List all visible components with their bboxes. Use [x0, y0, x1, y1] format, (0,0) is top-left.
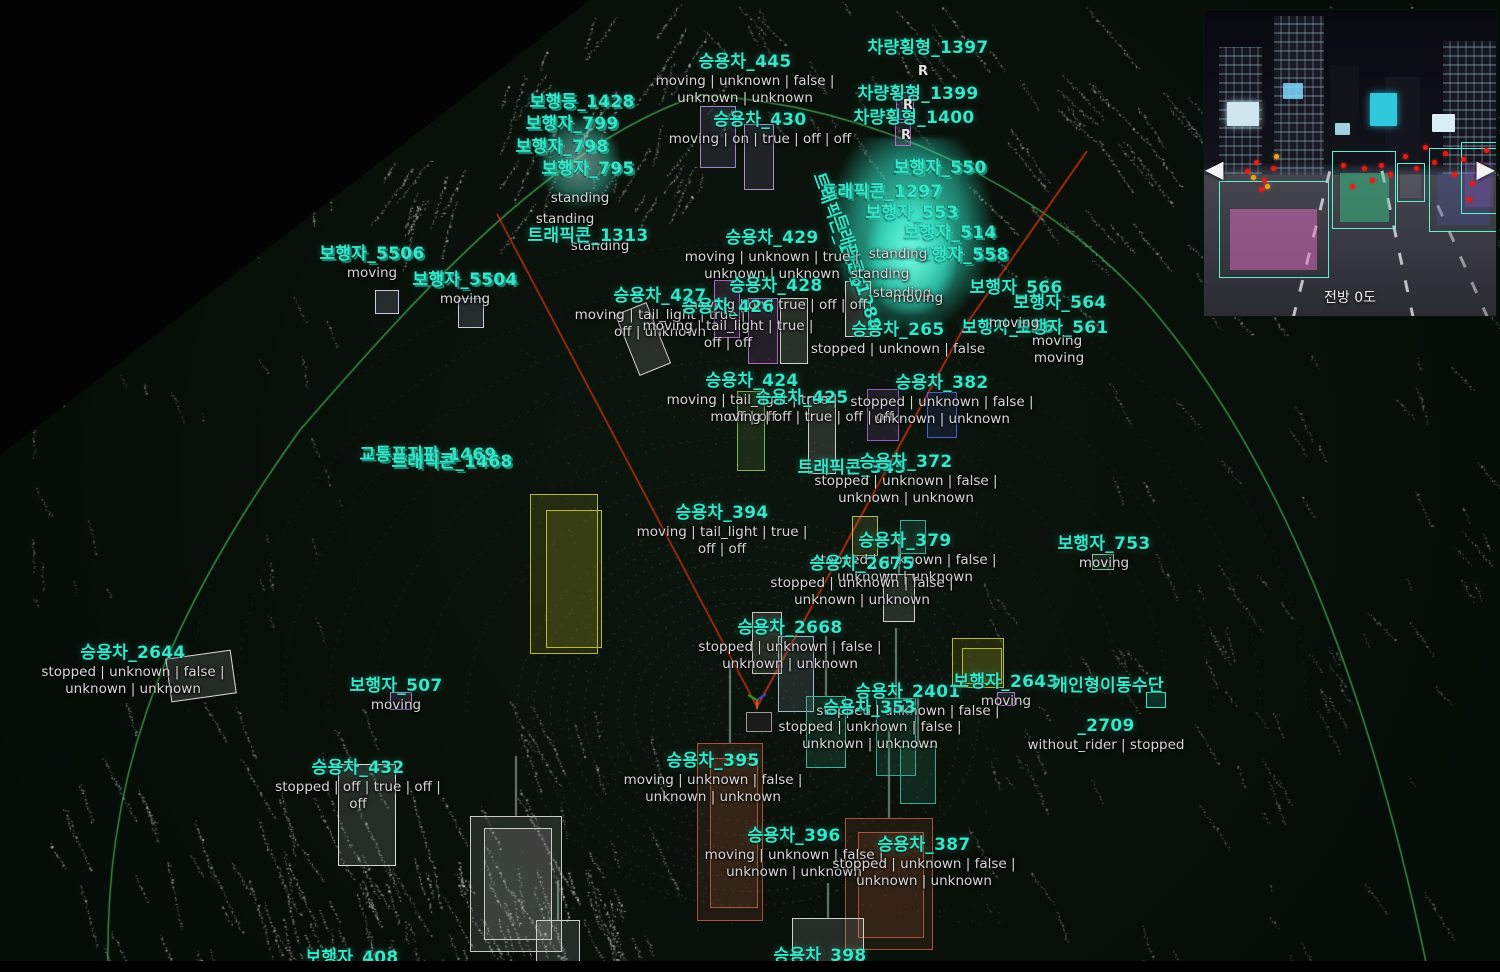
object-label[interactable]: 승용차_353stopped | unknown | false |unknow…: [778, 698, 961, 753]
object-label[interactable]: 승용차_395moving | unknown | false |unknown…: [624, 751, 803, 806]
object-attributes: unknown | unknown: [778, 736, 961, 753]
object-label[interactable]: 승용차_2668stopped | unknown | false |unkno…: [698, 618, 881, 673]
object-label[interactable]: 승용차_387stopped | unknown | false |unknow…: [832, 835, 1015, 890]
object-id: 차량횡형_1399: [857, 84, 978, 105]
bottom-letterbox: [0, 961, 1500, 972]
r-flag-label: R: [903, 98, 913, 113]
object-label[interactable]: 보행등_1428: [529, 92, 634, 113]
object-id: 승용차_353: [778, 698, 961, 719]
object-id: 승용차_429: [685, 228, 859, 249]
object-id: 승용차_2644: [41, 643, 224, 664]
object-status[interactable]: standing: [551, 190, 610, 207]
object-attributes: unknown | unknown: [814, 490, 997, 507]
object-attributes: stopped | unknown | false |: [832, 856, 1015, 873]
object-id: 보행자_553: [865, 203, 958, 224]
camera-view-panel: 전방 0도 ◀ ▶: [1204, 10, 1496, 316]
object-label[interactable]: 승용차_265stopped | unknown | false: [811, 320, 985, 358]
object-attributes: moving | tail_light | true |: [637, 524, 808, 541]
object-status[interactable]: moving: [1032, 333, 1082, 350]
object-id: 개인형이동수단: [1052, 676, 1164, 697]
camera-next-button[interactable]: ▶: [1477, 157, 1495, 181]
object-id: 트래픽콘_1297: [821, 182, 942, 203]
object-id: 승용차_426: [643, 297, 814, 318]
segmentation-mask: [1340, 173, 1389, 222]
detection-keypoint: [1274, 154, 1279, 159]
object-attributes: moving | on | true | off | off: [669, 131, 851, 148]
object-attributes: moving | unknown | true |: [685, 249, 859, 266]
object-attributes: moving: [893, 290, 943, 307]
object-attributes: moving | unknown | false |: [624, 772, 803, 789]
object-label[interactable]: 보행자_799: [525, 114, 618, 135]
object-attributes: stopped | unknown | false |: [41, 664, 224, 681]
object-id: 승용차_387: [832, 835, 1015, 856]
object-attributes: unknown | unknown: [624, 789, 803, 806]
object-label[interactable]: 개인형이동수단: [1052, 676, 1164, 697]
segmentation-mask: [1230, 209, 1316, 270]
object-attributes: unknown | unknown: [656, 90, 835, 107]
object-label[interactable]: 승용차_2644stopped | unknown | false |unkno…: [41, 643, 224, 698]
object-id: 보행자_507: [349, 676, 442, 697]
bbox-3d[interactable]: [546, 510, 602, 648]
object-label[interactable]: 보행자_795: [541, 159, 634, 180]
camera-prev-button[interactable]: ◀: [1205, 157, 1223, 181]
object-label[interactable]: 승용차_429moving | unknown | true |unknown …: [685, 228, 859, 283]
object-attributes: moving: [1034, 350, 1084, 367]
object-id: 승용차_445: [656, 52, 835, 73]
object-attributes: moving: [319, 265, 424, 282]
object-label[interactable]: 트래픽콘_1468: [391, 452, 512, 473]
detection-keypoint: [1467, 197, 1472, 202]
object-id: 승용차_2668: [698, 618, 881, 639]
object-id: 승용차_379: [813, 531, 996, 552]
object-attributes: standing: [551, 190, 610, 207]
object-label[interactable]: 승용차_394moving | tail_light | true |off |…: [637, 503, 808, 558]
detection-keypoint: [1403, 154, 1408, 159]
object-label[interactable]: 승용차_426moving | tail_light | true |off |…: [643, 297, 814, 352]
object-id: 승용차_395: [624, 751, 803, 772]
object-attributes: stopped | unknown | false |: [770, 575, 953, 592]
object-attributes: unknown | unknown: [770, 592, 953, 609]
object-label[interactable]: 차량횡형_1400: [853, 108, 974, 129]
object-status[interactable]: moving: [989, 315, 1039, 332]
camera-bbox: [1397, 163, 1425, 202]
object-attributes: stopped | unknown | false |: [778, 719, 961, 736]
object-attributes: moving: [1057, 555, 1150, 572]
object-attributes: stopped | unknown | false: [811, 341, 985, 358]
object-attributes: moving | tail_light | true |: [643, 318, 814, 335]
object-label[interactable]: 보행자_753moving: [1057, 534, 1150, 572]
object-id: 보행등_1428: [529, 92, 634, 113]
object-status[interactable]: moving: [1034, 350, 1084, 367]
object-attributes: without_rider | stopped: [1028, 737, 1185, 754]
detection-keypoint: [1245, 169, 1250, 174]
object-attributes: stopped | unknown | false |: [698, 639, 881, 656]
object-status[interactable]: moving: [893, 290, 943, 307]
object-label[interactable]: 트래픽콘_1297: [821, 182, 942, 203]
object-id: 보행자_550: [893, 158, 986, 179]
object-id: 승용차_2675: [770, 554, 953, 575]
object-id: 보행자_5506: [319, 244, 424, 265]
object-id: _2709: [1028, 716, 1185, 737]
object-attributes: off: [275, 796, 441, 813]
object-id: 승용차_372: [814, 452, 997, 473]
lidar-3d-viewport[interactable]: 승용차_445moving | unknown | false |unknown…: [0, 0, 1500, 972]
object-attributes: stopped | off | true | off |: [275, 779, 441, 796]
object-label[interactable]: 승용차_432stopped | off | true | off |off: [275, 758, 441, 813]
bbox-3d[interactable]: [900, 746, 936, 804]
object-attributes: moving: [953, 693, 1058, 710]
object-attributes: moving: [989, 315, 1039, 332]
object-label[interactable]: 승용차_382stopped | unknown | false |unknow…: [850, 373, 1033, 428]
detection-keypoint: [1254, 160, 1259, 165]
object-label[interactable]: 승용차_445moving | unknown | false |unknown…: [656, 52, 835, 107]
bbox-3d[interactable]: [375, 290, 399, 314]
object-label[interactable]: _2709without_rider | stopped: [1028, 716, 1185, 754]
object-attributes: unknown | unknown: [698, 656, 881, 673]
object-id: 보행자_799: [525, 114, 618, 135]
object-id: 승용차_394: [637, 503, 808, 524]
object-label[interactable]: 차량횡형_1399: [857, 84, 978, 105]
r-flag-label: R: [918, 64, 928, 79]
detection-keypoint: [1251, 175, 1256, 180]
billboard: [1370, 93, 1396, 127]
billboard: [1432, 114, 1455, 132]
object-label[interactable]: 보행자_514: [903, 223, 996, 244]
object-id: 승용차_430: [669, 110, 851, 131]
camera-caption: 전방 0도: [1204, 287, 1496, 307]
detection-keypoint: [1461, 157, 1466, 162]
object-label[interactable]: 보행자_558: [915, 245, 1008, 266]
object-id: 보행자_558: [915, 245, 1008, 266]
object-id: 보행자_2643: [953, 672, 1058, 693]
object-id: 보행자_795: [541, 159, 634, 180]
object-id: 트래픽콘_1468: [391, 452, 512, 473]
object-id: 트래픽콘_1313: [527, 226, 648, 247]
detection-keypoint: [1432, 160, 1437, 165]
object-label[interactable]: 보행자_507moving: [349, 676, 442, 714]
object-label[interactable]: 보행자_5506moving: [319, 244, 424, 282]
object-label[interactable]: 보행자_2643moving: [953, 672, 1058, 710]
object-id: 승용차_265: [811, 320, 985, 341]
object-id: 차량횡형_1397: [867, 38, 988, 59]
object-label[interactable]: 보행자_564: [1013, 293, 1106, 314]
object-label[interactable]: 보행자_553: [865, 203, 958, 224]
object-attributes: unknown | unknown: [850, 411, 1033, 428]
segmentation-mask: [1400, 174, 1421, 198]
object-id: 보행자_564: [1013, 293, 1106, 314]
object-id: 승용차_428: [685, 276, 867, 297]
object-label[interactable]: 승용차_2675stopped | unknown | false |unkno…: [770, 554, 953, 609]
object-attributes: stopped | unknown | false |: [850, 394, 1033, 411]
object-label[interactable]: 승용차_372stopped | unknown | false |unknow…: [814, 452, 997, 507]
detection-keypoint: [1362, 166, 1367, 171]
billboard: [1335, 123, 1350, 135]
bbox-3d[interactable]: [746, 712, 772, 732]
object-label[interactable]: 보행자_550: [893, 158, 986, 179]
object-id: 보행자_798: [515, 137, 608, 158]
object-label[interactable]: 보행자_5504moving: [412, 270, 517, 308]
object-label[interactable]: 보행자_798: [515, 137, 608, 158]
object-attributes: stopped | unknown | false |: [814, 473, 997, 490]
object-attributes: standing: [869, 246, 928, 263]
billboard: [1283, 83, 1303, 98]
camera-bbox: [1219, 181, 1329, 278]
detection-keypoint: [1423, 145, 1428, 150]
object-id: 보행자_753: [1057, 534, 1150, 555]
object-attributes: moving: [412, 291, 517, 308]
object-attributes: unknown | unknown: [832, 873, 1015, 890]
billboard: [1227, 102, 1259, 126]
object-label[interactable]: 차량횡형_1397: [867, 38, 988, 59]
object-id: 차량횡형_1400: [853, 108, 974, 129]
object-label[interactable]: 트래픽콘_1313: [527, 226, 648, 247]
object-attributes: moving: [349, 697, 442, 714]
object-status[interactable]: standing: [869, 246, 928, 263]
object-attributes: off | off: [643, 335, 814, 352]
object-id: 승용차_382: [850, 373, 1033, 394]
object-attributes: moving | unknown | false |: [656, 73, 835, 90]
object-attributes: moving: [1032, 333, 1082, 350]
object-id: 승용차_432: [275, 758, 441, 779]
object-id: 보행자_5504: [412, 270, 517, 291]
r-flag-label: R: [901, 128, 911, 143]
object-label[interactable]: 승용차_430moving | on | true | off | off: [669, 110, 851, 148]
object-attributes: unknown | unknown: [41, 681, 224, 698]
object-id: 보행자_514: [903, 223, 996, 244]
